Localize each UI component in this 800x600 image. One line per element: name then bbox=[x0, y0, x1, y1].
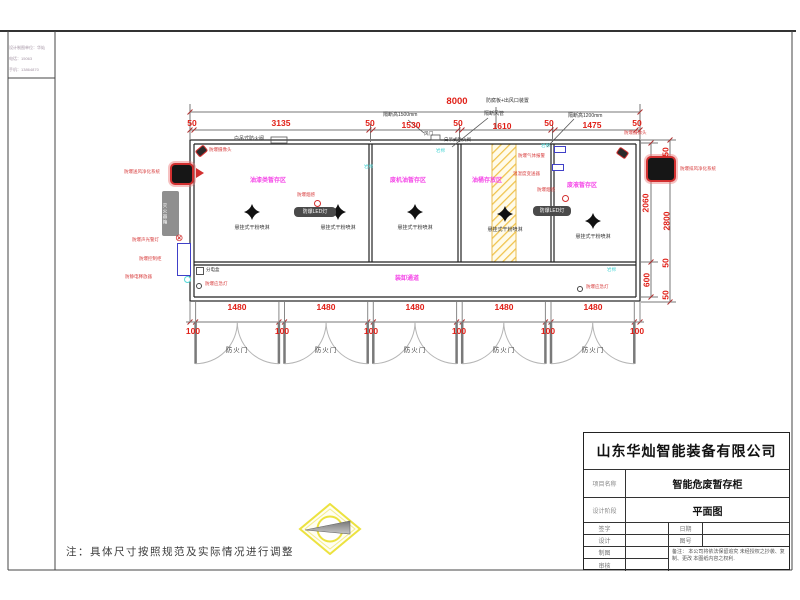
dim-right: 50 bbox=[661, 147, 670, 156]
fire-door-label: 防火门 bbox=[404, 347, 427, 354]
field-label-drawing-no: 图号 bbox=[669, 535, 703, 546]
info-line: 手机：13864870 bbox=[9, 64, 55, 75]
dim-door: 1480 bbox=[317, 303, 336, 312]
room-label-1: 油漆类暂存区 bbox=[250, 178, 286, 185]
info-line: 设计制图单位：华灿 bbox=[9, 42, 55, 53]
emergency-light-icon bbox=[196, 283, 202, 289]
field-label-stage: 设计阶段 bbox=[584, 498, 626, 522]
dim-top: 50 bbox=[187, 119, 196, 128]
junction-box-label: 分电盒 bbox=[206, 268, 220, 273]
humidity-sensor-label: 温湿度变送器 bbox=[513, 172, 540, 177]
room-label-3: 油桶存放区 bbox=[472, 178, 502, 185]
info-line: 电话：15063 bbox=[9, 53, 55, 64]
exhaust-fan-icon bbox=[646, 156, 676, 182]
dim-pier: 100 bbox=[186, 327, 200, 336]
camera-label: 防爆摄像头 bbox=[209, 148, 232, 153]
dim-pier: 100 bbox=[541, 327, 555, 336]
north-arrow-symbol bbox=[298, 503, 362, 555]
drawing-note: 注：具体尺寸按照规范及实际情况进行调整 bbox=[66, 544, 294, 559]
field-label-draft: 制图 bbox=[584, 547, 626, 558]
fire-damper-label: 白吊式防火阀 bbox=[234, 137, 264, 143]
alarm-light-label: 防爆声光警灯 bbox=[132, 238, 159, 243]
dim-top: 50 bbox=[365, 119, 374, 128]
supply-fan-icon bbox=[170, 163, 194, 185]
dim-right: 600 bbox=[642, 273, 651, 287]
dim-door: 1480 bbox=[584, 303, 603, 312]
led-light-badge: 防爆LED灯 bbox=[294, 207, 336, 217]
drawing-sheet: 设计制图单位：华灿 电话：15063 手机：13864870 8000 50 3… bbox=[0, 0, 800, 600]
partition-duct-label: 隔断风管 bbox=[484, 112, 504, 118]
camera-label: 防爆摄像头 bbox=[624, 131, 647, 136]
sprinkler-label: 悬挂式干粉喷淋 bbox=[320, 226, 355, 232]
dim-top: 1530 bbox=[402, 121, 421, 130]
smoke-detector-icon bbox=[562, 195, 569, 202]
project-name: 智能危废暂存柜 bbox=[626, 470, 789, 497]
smoke-detector-label: 防爆烟感 bbox=[297, 193, 315, 198]
emergency-light-label: 防爆应急灯 bbox=[205, 282, 228, 287]
dim-pier: 100 bbox=[275, 327, 289, 336]
static-release-label: 防静电释放器 bbox=[125, 275, 152, 280]
control-cabinet-label: 防爆控制柜 bbox=[139, 257, 162, 262]
field-label-date: 日期 bbox=[669, 523, 703, 534]
field-label-design: 设计 bbox=[584, 535, 626, 546]
dim-right: 50 bbox=[661, 258, 670, 267]
dim-top: 50 bbox=[453, 119, 462, 128]
field-label-sign: 签字 bbox=[584, 523, 626, 534]
dim-pier: 100 bbox=[630, 327, 644, 336]
room-label-2: 废机油暂存区 bbox=[390, 178, 426, 185]
dim-right: 2800 bbox=[662, 212, 671, 231]
insulation-label: 岩棉 bbox=[607, 268, 616, 273]
field-label-check: 审核 bbox=[584, 559, 626, 571]
smoke-detector-label: 防爆烟感 bbox=[537, 188, 555, 193]
walkway-label: 装卸通道 bbox=[395, 276, 419, 283]
signature-column: 签字 设计 制图 审核 bbox=[584, 523, 669, 571]
insulation-label: 岩棉 bbox=[436, 149, 445, 154]
exhaust-fan-label: 防爆排风净化系统 bbox=[680, 167, 716, 172]
dim-top: 50 bbox=[544, 119, 553, 128]
junction-box-icon bbox=[196, 267, 204, 275]
designer-info-box: 设计制图单位：华灿 电话：15063 手机：13864870 bbox=[9, 42, 55, 75]
explosion-proof-camera-icon bbox=[616, 147, 630, 160]
insulation-label: 岩棉 bbox=[541, 144, 550, 149]
sprinkler-label: 悬挂式干粉喷淋 bbox=[234, 226, 269, 232]
supply-fan-label: 防爆送风净化系统 bbox=[124, 170, 160, 175]
dim-door: 1480 bbox=[228, 303, 247, 312]
field-label-project: 项目名称 bbox=[584, 470, 626, 497]
dim-top: 1610 bbox=[493, 122, 512, 131]
emergency-light-icon bbox=[577, 286, 583, 292]
extinguisher-box: 灭火器箱 bbox=[162, 191, 179, 236]
dim-total: 8000 bbox=[446, 97, 467, 107]
gas-alarm-label: 防爆气体报警 bbox=[518, 154, 545, 159]
roof-panel-label: 防腐板+出风口装置 bbox=[486, 99, 529, 105]
title-block: 山东华灿智能装备有限公司 项目名称 智能危废暂存柜 设计阶段 平面图 签字 设计… bbox=[583, 432, 790, 570]
sprinkler-label: 悬挂式干粉喷淋 bbox=[487, 228, 522, 234]
control-cabinet-icon bbox=[177, 243, 191, 276]
partition-height-label: 隔断高1200mm bbox=[568, 114, 602, 120]
dim-top: 50 bbox=[632, 119, 641, 128]
room-label-4: 废液暂存区 bbox=[567, 183, 597, 190]
fire-door-label: 防火门 bbox=[226, 347, 249, 354]
dim-top: 1475 bbox=[583, 121, 602, 130]
date-number-column: 日期 图号 备注： 本公司将依法保留追究 未经授权之抄袭、复制、更改 本图纸内容… bbox=[669, 523, 789, 571]
dim-pier: 100 bbox=[364, 327, 378, 336]
dim-door: 1480 bbox=[495, 303, 514, 312]
gas-alarm-icon bbox=[554, 146, 566, 153]
partition-height-label: 隔断高1500mm bbox=[383, 113, 417, 119]
fire-damper-label: 白吊式防火阀 bbox=[444, 138, 471, 143]
sprinkler-label: 悬挂式干粉喷淋 bbox=[397, 226, 432, 232]
dim-pier: 100 bbox=[452, 327, 466, 336]
emergency-light-label: 防爆应急灯 bbox=[586, 285, 609, 290]
dim-door: 1480 bbox=[406, 303, 425, 312]
dim-right: 50 bbox=[661, 290, 670, 299]
copyright-remark: 备注： 本公司将依法保留追究 未经授权之抄袭、复制、更改 本图纸内容之权利. bbox=[669, 547, 789, 564]
dim-top: 3135 bbox=[272, 119, 291, 128]
fire-door-label: 防火门 bbox=[493, 347, 516, 354]
vent-label: 风门 bbox=[424, 132, 433, 137]
smoke-detector-icon bbox=[314, 200, 321, 207]
explosion-proof-camera-icon bbox=[195, 144, 209, 157]
sprinkler-label: 悬挂式干粉喷淋 bbox=[575, 235, 610, 241]
alarm-horn-icon bbox=[196, 168, 204, 178]
drawing-name: 平面图 bbox=[626, 498, 789, 522]
humidity-sensor-icon bbox=[552, 164, 564, 171]
company-name: 山东华灿智能装备有限公司 bbox=[584, 433, 789, 470]
fire-door-label: 防火门 bbox=[315, 347, 338, 354]
led-light-badge: 防爆LED灯 bbox=[533, 206, 571, 216]
fire-door-label: 防火门 bbox=[582, 347, 605, 354]
static-release-icon bbox=[184, 276, 191, 283]
insulation-label: 岩棉 bbox=[364, 165, 373, 170]
dim-right: 2060 bbox=[641, 194, 650, 213]
